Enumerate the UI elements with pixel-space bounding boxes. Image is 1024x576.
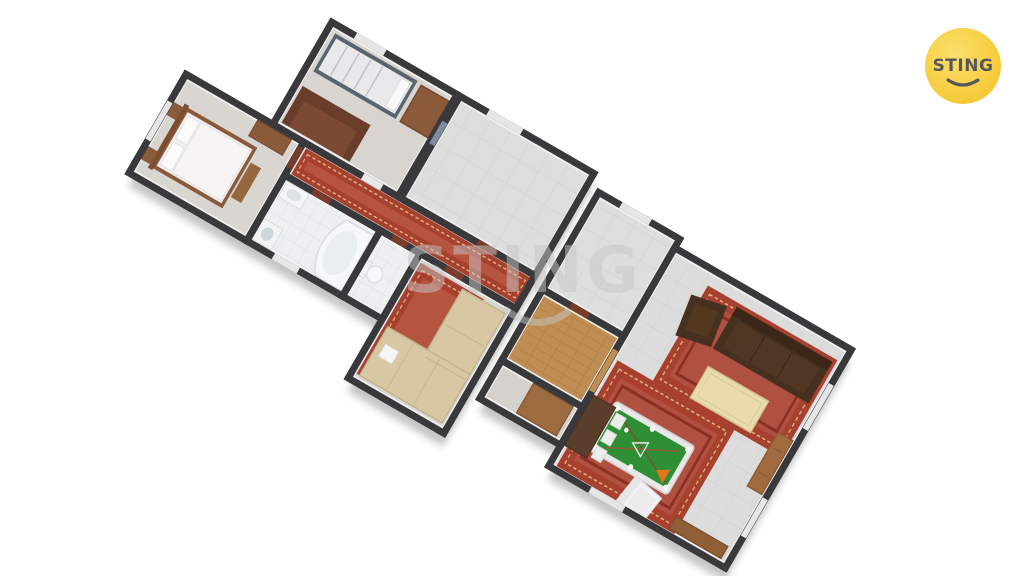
floor-plan-render: STING STING [0,0,1024,576]
floor-plan-page: STING STING [0,0,1024,576]
logo-text: STING [933,56,994,76]
sting-logo: STING [925,28,1001,104]
watermark-text: STING [403,234,643,308]
